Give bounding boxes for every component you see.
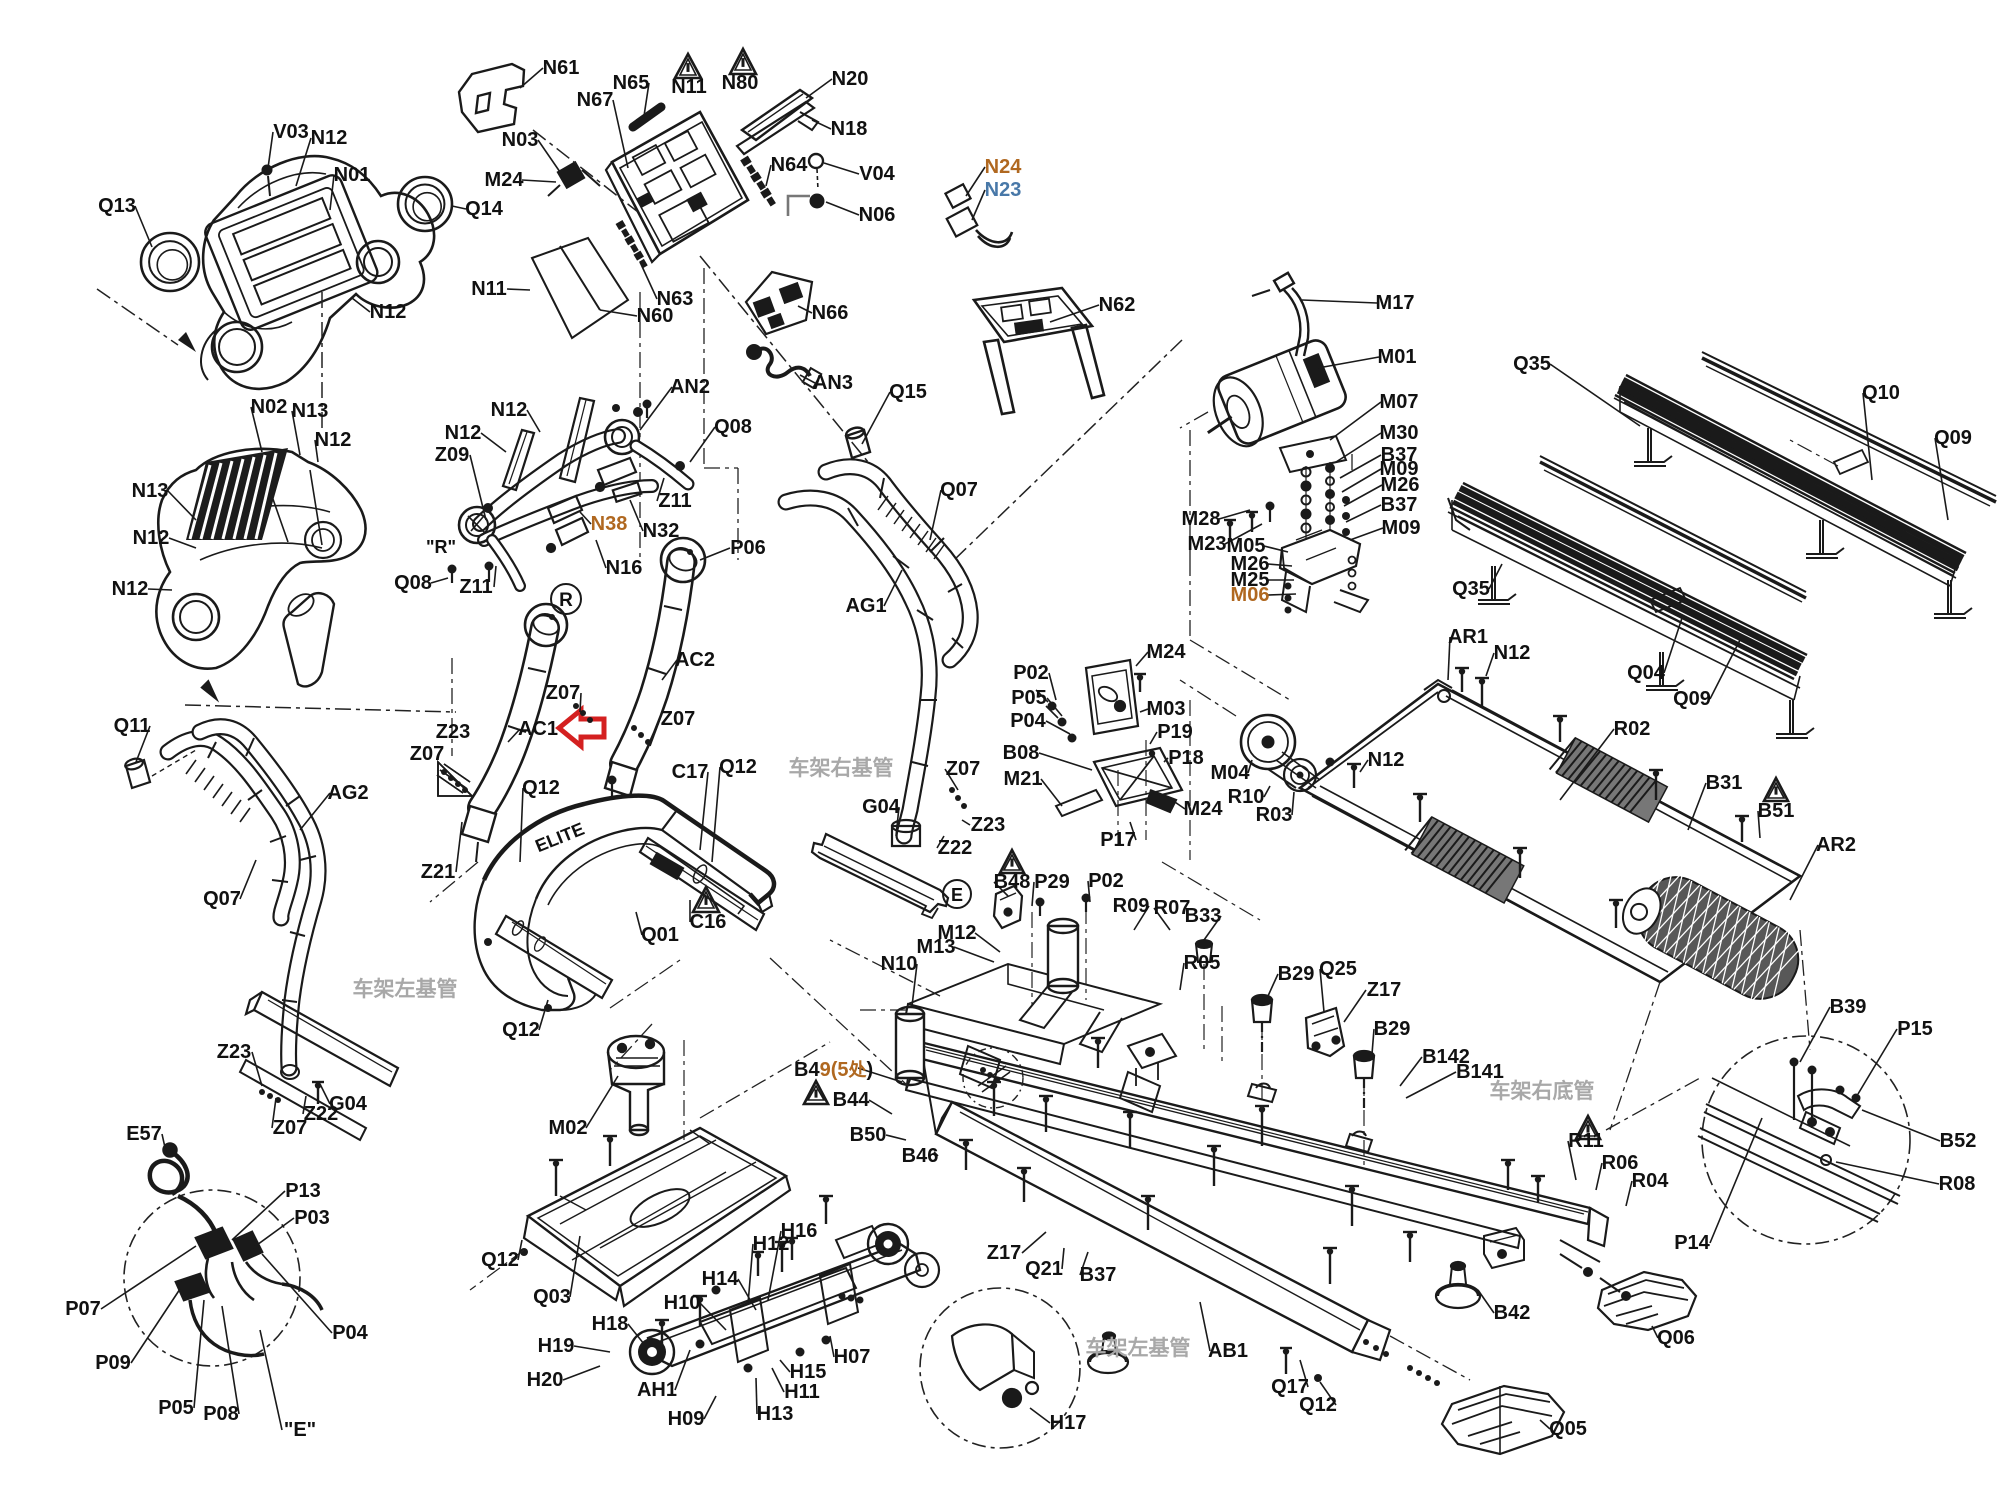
svg-text:P03: P03 <box>294 1207 330 1229</box>
svg-text:AG1: AG1 <box>845 595 886 617</box>
svg-text:P15: P15 <box>1897 1018 1933 1040</box>
svg-text:M26: M26 <box>1381 474 1420 496</box>
svg-text:N67: N67 <box>577 89 614 111</box>
svg-text:Z22: Z22 <box>938 837 972 859</box>
svg-text:AR1: AR1 <box>1448 626 1488 648</box>
svg-text:N65: N65 <box>613 72 650 94</box>
svg-text:Q35: Q35 <box>1452 578 1490 600</box>
svg-text:N10: N10 <box>881 953 918 975</box>
svg-text:M03: M03 <box>1147 698 1186 720</box>
svg-text:Z07: Z07 <box>410 743 444 765</box>
svg-text:Q13: Q13 <box>98 195 136 217</box>
svg-text:V04: V04 <box>859 163 895 185</box>
svg-text:Z11: Z11 <box>658 490 691 512</box>
svg-text:R08: R08 <box>1939 1173 1976 1195</box>
svg-text:N11: N11 <box>671 76 707 98</box>
svg-text:V03: V03 <box>273 121 309 143</box>
svg-text:P18: P18 <box>1168 747 1204 769</box>
svg-text:M17: M17 <box>1376 292 1415 314</box>
svg-text:R09: R09 <box>1113 895 1150 917</box>
svg-text:N16: N16 <box>606 557 643 579</box>
svg-text:N12: N12 <box>112 578 149 600</box>
svg-text:车架右基管: 车架右基管 <box>789 756 894 780</box>
svg-text:Q12: Q12 <box>719 756 757 778</box>
svg-text:P29: P29 <box>1034 871 1070 893</box>
svg-text:Q01: Q01 <box>641 924 679 946</box>
svg-text:N24: N24 <box>985 156 1023 178</box>
svg-text:Z17: Z17 <box>987 1242 1021 1264</box>
svg-text:N06: N06 <box>859 204 896 226</box>
svg-text:B33: B33 <box>1185 905 1222 927</box>
svg-text:AN3: AN3 <box>813 372 853 394</box>
svg-text:G04: G04 <box>862 796 901 818</box>
svg-text:Q25: Q25 <box>1319 958 1357 980</box>
svg-text:Z17: Z17 <box>1367 979 1401 1001</box>
svg-text:B44: B44 <box>833 1089 871 1111</box>
svg-text:N03: N03 <box>502 129 539 151</box>
svg-text:AC1: AC1 <box>518 718 558 740</box>
svg-text:Q08: Q08 <box>714 416 752 438</box>
svg-text:P02: P02 <box>1088 870 1124 892</box>
svg-text:P05: P05 <box>158 1397 194 1419</box>
svg-text:Q21: Q21 <box>1025 1258 1063 1280</box>
svg-text:P07: P07 <box>65 1298 101 1320</box>
svg-text:H18: H18 <box>592 1313 629 1335</box>
svg-text:Z07: Z07 <box>661 708 695 730</box>
svg-text:H07: H07 <box>834 1346 871 1368</box>
svg-text:P09: P09 <box>95 1352 131 1374</box>
svg-text:Q12: Q12 <box>1299 1394 1337 1416</box>
svg-text:H10: H10 <box>664 1292 701 1314</box>
svg-text:B39: B39 <box>1830 996 1867 1018</box>
svg-text:N62: N62 <box>1099 294 1136 316</box>
svg-text:Z11: Z11 <box>459 576 492 598</box>
svg-text:Z21: Z21 <box>421 861 455 883</box>
svg-text:B46: B46 <box>902 1145 939 1167</box>
svg-text:R11: R11 <box>1568 1130 1604 1152</box>
svg-text:Q07: Q07 <box>203 888 241 910</box>
svg-text:P14: P14 <box>1674 1232 1710 1254</box>
svg-text:H17: H17 <box>1050 1412 1087 1434</box>
svg-text:N12: N12 <box>311 127 348 149</box>
svg-text:N60: N60 <box>637 305 674 327</box>
svg-text:N23: N23 <box>985 179 1022 201</box>
svg-text:"R": "R" <box>426 537 456 557</box>
svg-text:车架左基管: 车架左基管 <box>1086 1336 1191 1360</box>
svg-text:N11: N11 <box>471 278 507 300</box>
svg-text:M24: M24 <box>1147 641 1187 663</box>
svg-text:Z23: Z23 <box>436 721 470 743</box>
svg-text:N12: N12 <box>1494 642 1531 664</box>
svg-text:N12: N12 <box>133 527 170 549</box>
svg-text:M30: M30 <box>1380 422 1419 444</box>
svg-text:Q14: Q14 <box>465 198 504 220</box>
svg-text:P17: P17 <box>1100 829 1136 851</box>
svg-text:Q11: Q11 <box>114 715 151 737</box>
svg-text:AN2: AN2 <box>670 376 710 398</box>
svg-text:M28: M28 <box>1182 508 1221 530</box>
svg-text:Q12: Q12 <box>502 1019 540 1041</box>
svg-text:B52: B52 <box>1940 1130 1977 1152</box>
svg-text:Q04: Q04 <box>1627 662 1666 684</box>
svg-text:B49(5处): B49(5处) <box>794 1059 873 1081</box>
svg-text:B31: B31 <box>1706 772 1743 794</box>
svg-text:AR2: AR2 <box>1816 834 1856 856</box>
svg-text:N12: N12 <box>370 301 407 323</box>
svg-text:N12: N12 <box>1368 749 1405 771</box>
svg-text:N32: N32 <box>643 520 680 542</box>
svg-text:车架右底管: 车架右底管 <box>1490 1079 1595 1103</box>
svg-text:AG2: AG2 <box>327 782 368 804</box>
svg-text:H19: H19 <box>538 1335 575 1357</box>
svg-text:N13: N13 <box>132 480 169 502</box>
svg-text:B42: B42 <box>1494 1302 1531 1324</box>
svg-text:Z23: Z23 <box>217 1041 251 1063</box>
svg-text:R04: R04 <box>1632 1170 1670 1192</box>
svg-text:Q07: Q07 <box>940 479 978 501</box>
svg-text:N80: N80 <box>722 72 759 94</box>
svg-text:P13: P13 <box>285 1180 321 1202</box>
svg-text:H13: H13 <box>757 1403 794 1425</box>
svg-text:H15: H15 <box>790 1361 827 1383</box>
svg-text:N13: N13 <box>292 400 329 422</box>
svg-text:M24: M24 <box>1184 798 1224 820</box>
svg-text:B48: B48 <box>994 871 1031 893</box>
svg-text:R: R <box>559 590 573 611</box>
svg-text:H12: H12 <box>753 1233 790 1255</box>
svg-text:M07: M07 <box>1380 391 1419 413</box>
svg-text:Z23: Z23 <box>971 814 1005 836</box>
svg-text:N12: N12 <box>491 399 528 421</box>
svg-text:Q10: Q10 <box>1862 382 1900 404</box>
svg-text:Q35: Q35 <box>1513 353 1551 375</box>
svg-text:N18: N18 <box>831 118 868 140</box>
svg-text:M13: M13 <box>917 936 956 958</box>
svg-text:AC2: AC2 <box>675 649 715 671</box>
svg-text:Q05: Q05 <box>1549 1418 1587 1440</box>
svg-text:Z07: Z07 <box>546 682 580 704</box>
svg-text:N66: N66 <box>812 302 849 324</box>
svg-text:H14: H14 <box>702 1268 740 1290</box>
svg-text:N38: N38 <box>591 513 628 535</box>
svg-text:N12: N12 <box>445 422 482 444</box>
svg-text:M23: M23 <box>1188 533 1227 555</box>
svg-text:N61: N61 <box>543 57 580 79</box>
svg-text:P04: P04 <box>332 1322 368 1344</box>
svg-text:E57: E57 <box>126 1123 162 1145</box>
svg-text:B51: B51 <box>1758 800 1795 822</box>
svg-text:N20: N20 <box>832 68 869 90</box>
svg-text:R02: R02 <box>1614 718 1651 740</box>
svg-text:B29: B29 <box>1278 963 1315 985</box>
svg-text:Z09: Z09 <box>435 444 469 466</box>
svg-text:R03: R03 <box>1256 804 1293 826</box>
svg-text:Z07: Z07 <box>273 1117 307 1139</box>
svg-text:E: E <box>951 885 963 905</box>
svg-text:C16: C16 <box>690 911 727 933</box>
svg-text:Q03: Q03 <box>533 1286 571 1308</box>
svg-text:P02: P02 <box>1013 662 1049 684</box>
svg-text:P05: P05 <box>1011 687 1047 709</box>
svg-text:Q06: Q06 <box>1657 1327 1695 1349</box>
svg-text:N12: N12 <box>315 429 352 451</box>
svg-text:G04: G04 <box>329 1093 368 1115</box>
svg-text:M09: M09 <box>1382 517 1421 539</box>
svg-text:Z07: Z07 <box>946 758 980 780</box>
svg-text:N02: N02 <box>251 396 288 418</box>
svg-text:B37: B37 <box>1080 1264 1117 1286</box>
svg-text:车架左基管: 车架左基管 <box>353 977 458 1001</box>
svg-text:H11: H11 <box>784 1381 820 1403</box>
svg-text:R05: R05 <box>1184 952 1221 974</box>
svg-text:M21: M21 <box>1004 768 1043 790</box>
svg-text:B29: B29 <box>1374 1018 1411 1040</box>
svg-text:Q15: Q15 <box>889 381 927 403</box>
svg-text:Q09: Q09 <box>1934 427 1972 449</box>
svg-text:M06: M06 <box>1231 584 1270 606</box>
svg-text:N64: N64 <box>771 154 809 176</box>
svg-text:H09: H09 <box>668 1408 705 1430</box>
svg-text:B50: B50 <box>850 1124 887 1146</box>
svg-text:N01: N01 <box>334 164 371 186</box>
svg-text:Q12: Q12 <box>522 777 560 799</box>
svg-text:M24: M24 <box>485 169 525 191</box>
svg-text:AB1: AB1 <box>1208 1340 1248 1362</box>
svg-text:Q09: Q09 <box>1673 688 1711 710</box>
svg-text:M01: M01 <box>1378 346 1417 368</box>
svg-text:B08: B08 <box>1003 742 1040 764</box>
svg-text:P19: P19 <box>1157 721 1193 743</box>
svg-text:"E": "E" <box>284 1419 316 1441</box>
svg-text:C17: C17 <box>672 761 709 783</box>
svg-text:AH1: AH1 <box>637 1379 677 1401</box>
svg-text:H20: H20 <box>527 1369 564 1391</box>
svg-text:P04: P04 <box>1010 710 1046 732</box>
svg-text:Q12: Q12 <box>481 1249 519 1271</box>
svg-text:P08: P08 <box>203 1403 239 1425</box>
svg-text:Q08: Q08 <box>394 572 432 594</box>
svg-text:P06: P06 <box>730 537 766 559</box>
svg-text:B37: B37 <box>1381 494 1418 516</box>
svg-text:M04: M04 <box>1211 762 1251 784</box>
svg-text:M02: M02 <box>549 1117 588 1139</box>
